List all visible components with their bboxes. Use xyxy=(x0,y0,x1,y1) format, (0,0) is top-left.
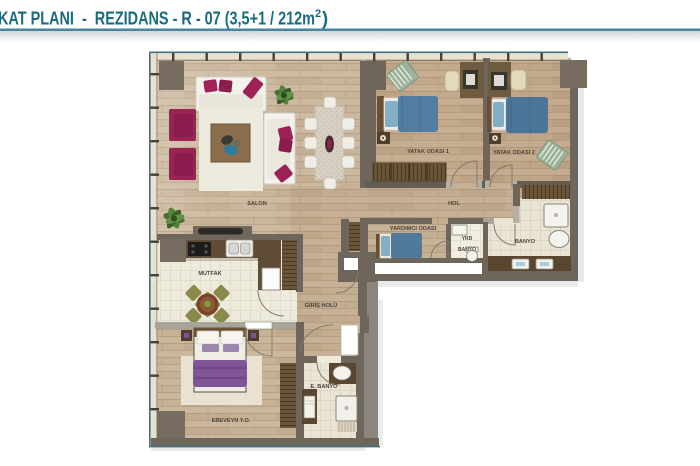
svg-text:SALON: SALON xyxy=(247,201,267,207)
svg-text:KAT PLANI - REZIDANS - R - 0: KAT PLANI - REZIDANS - R - 07 (3,5+1 / 2… xyxy=(0,8,315,29)
svg-text:): ) xyxy=(322,8,328,29)
svg-text:YARDIMCI ODASI: YARDIMCI ODASI xyxy=(390,226,437,232)
svg-text:YATAK ODASI 1: YATAK ODASI 1 xyxy=(407,149,449,155)
svg-text:HOL: HOL xyxy=(448,201,460,207)
svg-text:BANYO: BANYO xyxy=(458,247,476,253)
svg-text:YRD: YRD xyxy=(462,236,473,242)
svg-text:MUTFAK: MUTFAK xyxy=(198,271,221,277)
svg-text:2: 2 xyxy=(315,8,321,20)
svg-text:EBEVEYN Y.O.: EBEVEYN Y.O. xyxy=(212,418,251,424)
svg-text:BANYO: BANYO xyxy=(515,239,536,245)
svg-text:GİRİŞ HOLÜ: GİRİŞ HOLÜ xyxy=(305,302,338,309)
svg-text:E. BANYO: E. BANYO xyxy=(310,384,338,390)
svg-text:YATAK ODASI 2: YATAK ODASI 2 xyxy=(493,150,535,156)
